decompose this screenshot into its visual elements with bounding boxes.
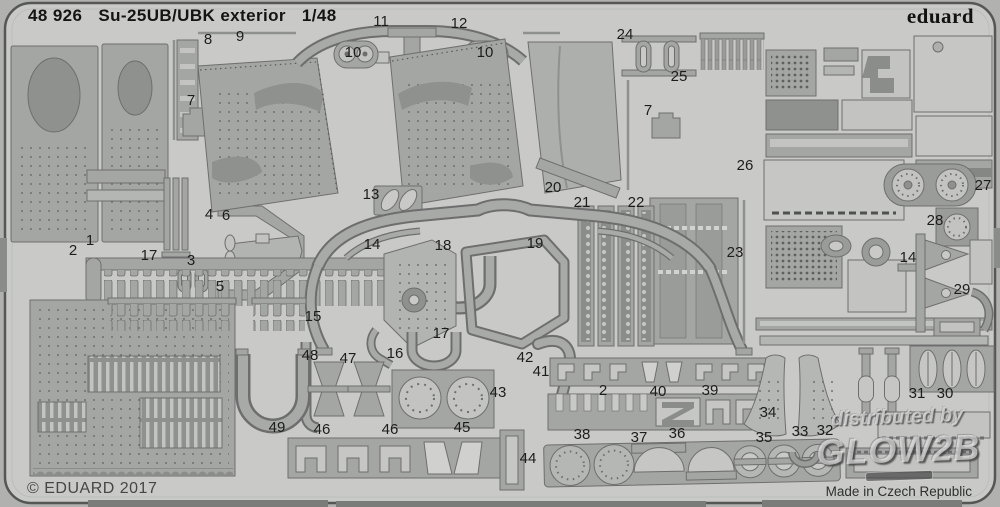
sheet-header: 48 926Su-25UB/UBK exterior1/48 — [28, 6, 337, 26]
comb-strip-2b — [548, 394, 762, 430]
catalog-number: 48 926 — [28, 6, 82, 25]
copyright-text: © EDUARD 2017 — [27, 480, 157, 498]
left-oval-panels — [11, 44, 168, 242]
sheet-title: Su-25UB/UBK exterior — [98, 6, 286, 25]
eduard-logo: eduard — [907, 4, 974, 29]
origin-text: Made in Czech Republic — [826, 484, 972, 499]
watermark-line2: GLOW2B — [796, 425, 1000, 474]
skin-panel-centre — [390, 39, 523, 206]
hook-strip — [550, 358, 770, 386]
distributor-watermark: distributed by GLOW2B — [795, 402, 1000, 483]
skin-panel-left — [198, 58, 338, 212]
pe-fret-photo: 48 926Su-25UB/UBK exterior1/48 eduard © … — [0, 0, 1000, 507]
sheet-scale: 1/48 — [302, 6, 337, 25]
